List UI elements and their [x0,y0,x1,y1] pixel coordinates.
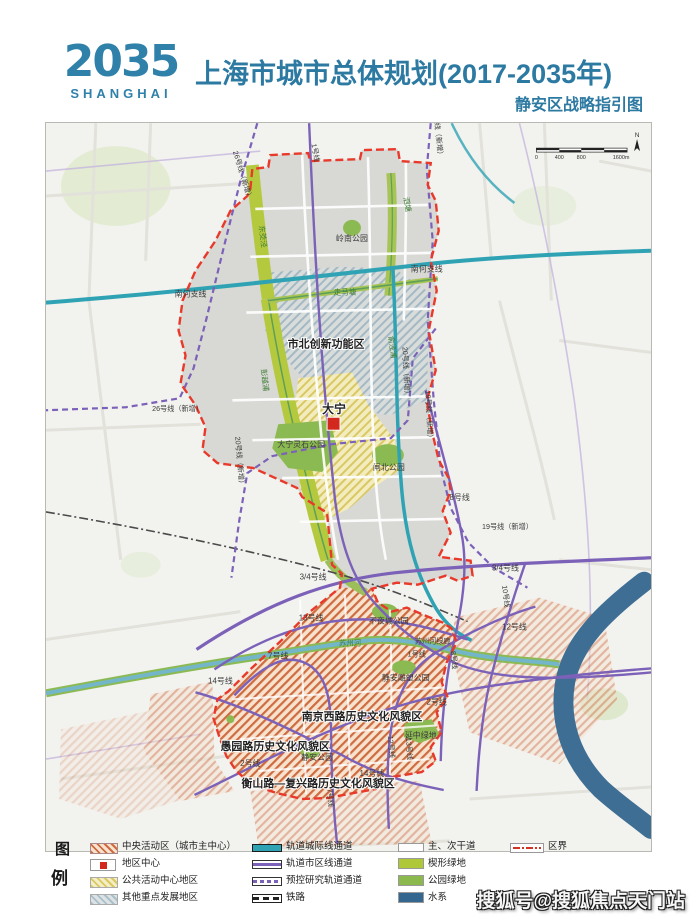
page-title: 上海市城市总体规划(2017-2035年) [195,52,655,91]
legend-label-other-key-area: 其他重点发展地区 [122,892,198,904]
legend-swatch-railway [252,894,282,903]
page: 2035 SHANGHAI 上海市城市总体规划(2017-2035年) 静安区战… [0,0,695,918]
legend-swatch-public-center [90,877,118,888]
legend-swatch-road [398,843,424,852]
scale-bar: 0 400 800 1600m [535,148,630,161]
svg-text:N: N [635,132,640,139]
legend-label-caz: 中央活动区（城市主中心） [122,841,236,853]
legend-label-wedge-green: 楔形绿地 [428,858,466,870]
label-line2-east: 2号线 [427,696,447,706]
scale-800: 800 [577,155,586,161]
shanghai-2035-logo: 2035 SHANGHAI [56,40,186,101]
label-line8-south: 8号线 [449,651,460,670]
legend-swatch-district-center [90,859,116,871]
label-shibei-innovation-area: 市北创新功能区 [288,336,365,350]
legend-label-urban-metro: 轨道市区线通道 [286,858,353,870]
label-yuyuan-road-area: 愚园路历史文化风貌区 [220,739,330,753]
map-canvas: 0 400 800 1600m N 26号线（新增） 1号线 19号线（新增） … [45,122,652,852]
label-line19-south: 19号线（新增） [482,522,533,531]
legend-label-road: 主、次干道 [428,841,476,853]
label-hengshan-fuxing-area: 衡山路—复兴路历史文化风貌区 [241,776,394,790]
legend-swatch-boundary [510,843,544,853]
north-arrow-icon: N [634,132,640,151]
district-center-icon [100,862,107,869]
label-zhabei-park: 闸北公园 [373,463,405,472]
legend-swatch-park-green [398,875,424,886]
label-line1-south: 1号线 [408,649,426,658]
label-nanjing-west-road-area: 南京西路历史文化风貌区 [302,709,423,723]
label-jingan-park: 静安公园 [301,752,333,762]
label-buyecheng-park: 不夜城公园 [369,616,409,626]
legend-char-li: 例 [51,864,68,889]
legend-char-tu: 图 [55,838,70,859]
page-subtitle: 静安区战略指引图 [395,91,643,115]
label-line12-east: 12号线 [502,622,527,632]
label-line34-west: 3/4号线 [300,572,327,582]
scale-400: 400 [555,155,564,161]
label-nanhe-branch-west: 南何支线 [175,289,207,299]
label-line8-north: 8号线 [449,492,469,502]
label-jingan-sculpture-park: 静安雕塑公园 [382,672,430,682]
scale-1600: 1600m [613,155,630,161]
legend-swatch-other-key-area [90,894,118,905]
label-line26-west: 26号线（新增） [152,404,203,413]
label-line10: 10号线 [500,585,512,608]
legend-label-intercity-rail: 轨道城际线通道 [286,841,353,853]
planning-map: 0 400 800 1600m N 26号线（新增） 1号线 19号线（新增） … [46,123,651,851]
label-line2-west: 2号线 [240,758,260,768]
legend-swatch-water [398,892,424,903]
legend-label-park-green: 公园绿地 [428,875,466,887]
label-zoumatang-river: 走马塘 [334,287,357,297]
legend-label-public-center: 公共活动中心地区 [122,875,198,887]
legend-swatch-urban-metro [252,860,282,869]
label-nanhe-branch-east: 南何支线 [411,264,443,274]
legend-swatch-intercity-rail [252,844,282,852]
label-line13-west: 13号线 [299,613,324,623]
label-daning: 大宁 [322,401,346,416]
label-line7-south: 7号线 [325,788,336,807]
legend-label-boundary: 区界 [548,841,567,853]
logo-city: SHANGHAI [56,86,186,101]
label-line14-west: 14号线 [208,675,233,685]
label-suzhou-creek: 苏州河 [339,637,362,647]
legend-label-district-center: 地区中心 [122,858,160,870]
label-line19-top: 19号线（新增） [431,123,445,159]
legend-label-railway: 铁路 [286,892,305,904]
label-line14-south: 14号线 [360,768,385,778]
district-center-marker [327,417,340,430]
label-suzhou-creek-greenway: 苏州河绿廊 [415,636,451,645]
legend-label-water: 水系 [428,892,447,904]
label-line34-east: 3/4号线 [492,563,519,573]
legend-swatch-caz [90,843,118,854]
legend-swatch-reserved-metro [252,877,282,886]
label-daning-lingshi-park: 大宁灵石公园 [277,439,325,449]
scale-0: 0 [535,155,538,161]
legend-label-reserved-metro: 预控研究轨道通道 [286,875,362,887]
legend-swatch-wedge-green [398,858,424,869]
label-lingnan-park: 岭南公园 [336,233,368,243]
label-line7-north: 7号线 [268,650,288,660]
logo-year: 2035 [56,40,186,84]
watermark: 搜狐号@搜狐焦点天门站 [476,886,685,913]
